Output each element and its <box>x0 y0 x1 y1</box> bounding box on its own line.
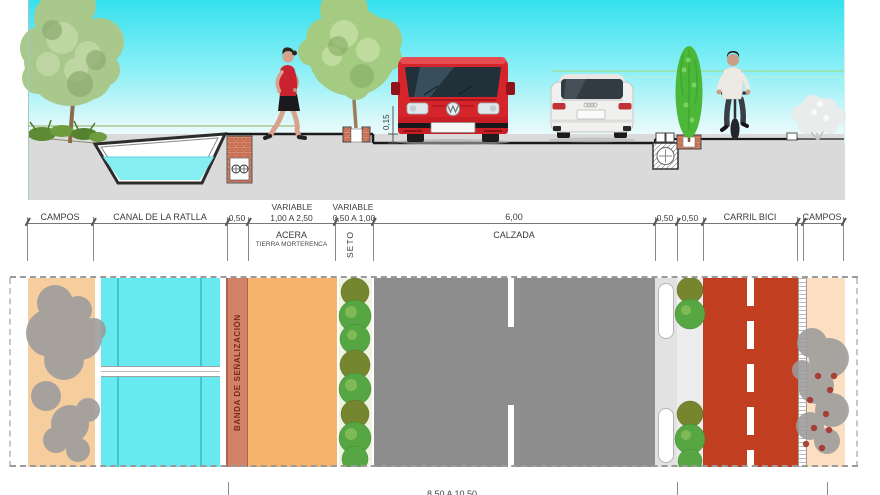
curb-block <box>656 133 665 142</box>
dim-tick <box>843 217 844 261</box>
dim-tick <box>227 217 228 261</box>
curb-height-label: 0,15 <box>382 114 391 130</box>
plan-trees-right <box>792 328 849 454</box>
bottom-dim-tick <box>677 482 678 495</box>
canal-section <box>95 134 225 183</box>
dim-campos-left: CAMPOS <box>27 212 93 222</box>
dim-tick <box>335 217 336 261</box>
van-license-plate <box>431 123 475 133</box>
bottom-dim-tick <box>228 482 229 495</box>
bottom-dim-tick <box>827 482 828 495</box>
dim-tick <box>797 217 798 261</box>
plan-border-left <box>9 278 11 467</box>
dim-tick <box>93 217 94 261</box>
canal-water <box>103 157 214 180</box>
plan-border-top <box>10 276 858 278</box>
van-mirror-left <box>391 82 400 95</box>
dim-variable-left: VARIABLE <box>262 202 322 212</box>
plan-bushes-median <box>675 278 705 467</box>
dim-carril-bici: CARRIL BICI <box>703 212 797 222</box>
dim-acera-range: 1,00 A 2,50 <box>248 213 335 223</box>
dim-tick <box>677 217 678 261</box>
suv-taillight-right <box>619 103 632 110</box>
tree-planter <box>343 127 370 142</box>
irrigation-structure <box>227 136 252 183</box>
red-van <box>391 57 515 145</box>
street-section-diagram: 0,15 VARIABLE VARIABLE CAMPOS CANAL DE L… <box>0 0 880 495</box>
dim-tick <box>248 217 249 261</box>
cross-section-view: 0,15 <box>0 0 880 212</box>
dim-tick <box>703 217 704 261</box>
dim-calzada-width: 6,00 <box>373 212 655 222</box>
dim-tick <box>27 217 28 261</box>
plan-hedge-seto <box>339 278 371 467</box>
bottom-total-range: 8,50 A 10,50 <box>352 489 552 495</box>
white-suv <box>549 74 635 143</box>
label-acera: ACERA <box>248 230 335 240</box>
dimension-line <box>27 223 844 224</box>
dim-canal: CANAL DE LA RATLLA <box>93 212 227 222</box>
label-acera-material: TIERRA MORTERENCA <box>240 240 343 250</box>
suv-license-plate <box>577 110 605 119</box>
dim-campos-right: CAMPOS <box>800 212 844 222</box>
dim-tick <box>803 217 804 261</box>
van-mirror-right <box>506 82 515 95</box>
plan-border-bottom <box>10 465 858 467</box>
curb-block <box>666 133 674 142</box>
dim-variable-right: VARIABLE <box>323 202 383 212</box>
label-seto: SETO <box>345 227 362 263</box>
label-calzada: CALZADA <box>373 230 655 240</box>
plan-trees-left <box>26 285 106 462</box>
dim-tick <box>373 217 374 261</box>
plan-decorations <box>0 278 880 467</box>
curb-block <box>787 133 797 140</box>
dimension-band: VARIABLE VARIABLE CAMPOS CANAL DE LA RAT… <box>0 195 880 265</box>
plan-border-right <box>856 278 858 467</box>
suv-taillight-left <box>553 103 566 110</box>
dim-tick <box>655 217 656 261</box>
dim-050-b: 0,50 <box>677 213 703 223</box>
drainage-structure <box>653 143 678 169</box>
